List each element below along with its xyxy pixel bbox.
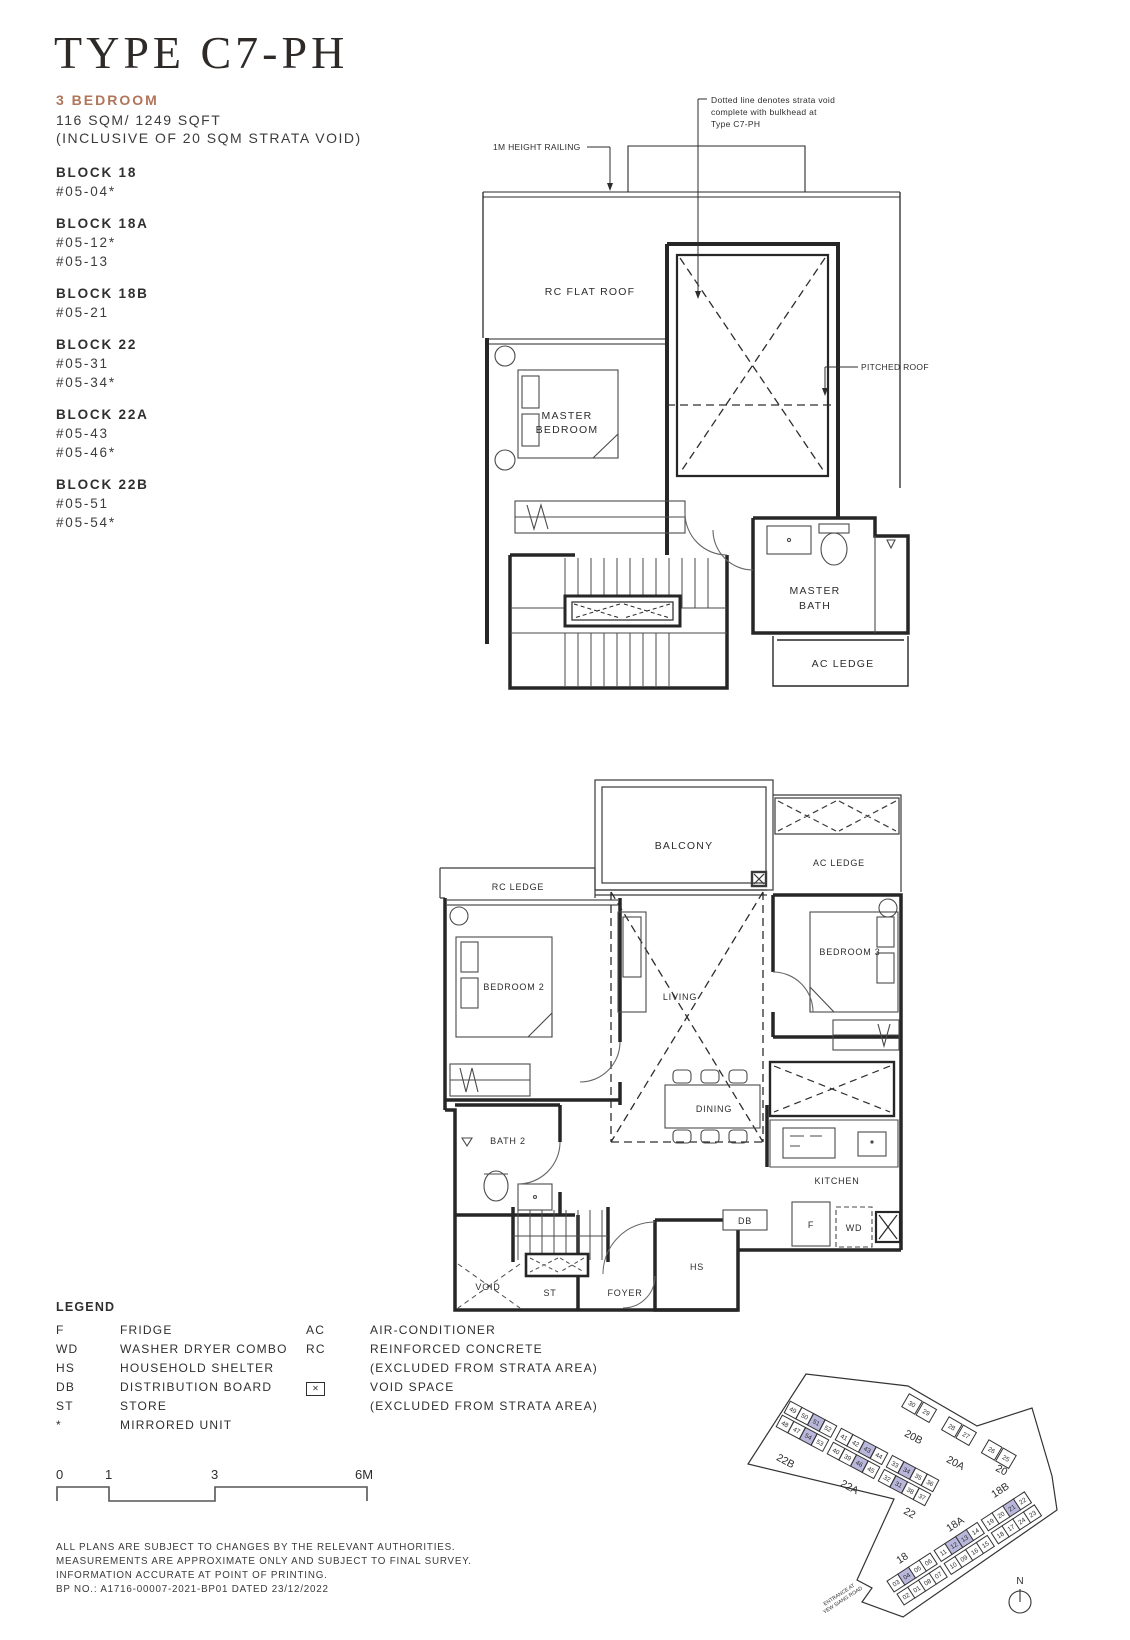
rc-flat-roof-label: RC FLAT ROOF (545, 286, 635, 298)
block-18: BLOCK 18 #05-04* (56, 163, 316, 201)
block-name: BLOCK 22 (56, 335, 316, 354)
block-unit: #05-51 (56, 494, 316, 513)
site-block-label-22: 22 (901, 1505, 917, 1521)
stair-void-box (565, 596, 680, 626)
railing-annotation: 1M HEIGHT RAILING (493, 142, 581, 152)
upper-floor-plan: RC FLAT ROOF MASTER BEDROOM MASTER BATH … (415, 88, 975, 706)
master-bath-fixtures (685, 513, 895, 633)
block-22b: BLOCK 22B #05-51 #05-54* (56, 475, 316, 532)
svg-text:0: 0 (56, 1467, 63, 1482)
site-units: 4950515241424344333435364847545340394645… (776, 1394, 1041, 1605)
kitchen-label: KITCHEN (814, 1176, 859, 1186)
site-block-label-20A: 20A (944, 1454, 966, 1473)
note-line: BP NO.: A1716-00007-2021-BP01 DATED 23/1… (56, 1583, 472, 1597)
block-name: BLOCK 18B (56, 284, 316, 303)
strata-void-annotation: Dotted line denotes strata void (711, 95, 835, 105)
legend-title: LEGEND (56, 1300, 676, 1314)
north-label: N (1016, 1576, 1023, 1587)
living-strata-void-dashed (611, 892, 763, 1142)
block-unit: #05-04* (56, 182, 316, 201)
db-label: DB (738, 1216, 752, 1226)
site-block-label-18: 18 (894, 1550, 910, 1567)
upper-walls (487, 244, 908, 688)
site-block-label-20B: 20B (902, 1428, 924, 1447)
fridge-label: F (808, 1220, 814, 1230)
bath2-label: BATH 2 (490, 1136, 526, 1146)
block-18a: BLOCK 18A #05-12* #05-13 (56, 214, 316, 271)
unit-area-note: (INCLUSIVE OF 20 SQM STRATA VOID) (56, 130, 362, 146)
page-title: TYPE C7-PH (54, 26, 348, 79)
block-unit: #05-54* (56, 513, 316, 532)
block-unit: #05-31 (56, 354, 316, 373)
svg-text:complete with bulkhead at: complete with bulkhead at (711, 107, 817, 117)
svg-text:Type C7-PH: Type C7-PH (711, 119, 760, 129)
svg-text:1: 1 (105, 1467, 112, 1482)
legend: LEGEND FFRIDGE WDWASHER DRYER COMBO HSHO… (56, 1300, 676, 1435)
site-block-label-22A: 22A (838, 1478, 860, 1497)
void-space-symbol: ✕ (306, 1382, 325, 1396)
block-18b: BLOCK 18B #05-21 (56, 284, 316, 322)
rc-ledge-label: RC LEDGE (492, 882, 544, 892)
site-plan: 4950515241424344333435364847545340394645… (700, 1330, 1130, 1640)
site-block-label-18B: 18B (989, 1480, 1011, 1500)
master-bedroom-label: MASTER (542, 410, 593, 422)
bedroom3-label: BEDROOM 3 (819, 947, 880, 957)
scale-bar: 0 1 3 6M (55, 1465, 395, 1507)
dining-label: DINING (696, 1104, 732, 1114)
wd-label: WD (846, 1223, 863, 1233)
bedroom2-label: BEDROOM 2 (483, 982, 544, 992)
note-line: MEASUREMENTS ARE APPROXIMATE ONLY AND SU… (56, 1555, 472, 1569)
svg-text:BEDROOM: BEDROOM (536, 424, 599, 436)
strata-void-dashed (667, 258, 838, 473)
entrance-annotation: ENTRANCE AT YEW SIANG ROAD (819, 1580, 864, 1616)
lower-walls (445, 895, 901, 1310)
legend-left-column: FFRIDGE WDWASHER DRYER COMBO HSHOUSEHOLD… (56, 1321, 306, 1435)
disclaimer-notes: ALL PLANS ARE SUBJECT TO CHANGES BY THE … (56, 1541, 472, 1597)
ledges-balcony (440, 780, 901, 898)
ac-ledge-label: AC LEDGE (813, 858, 865, 868)
note-line: ALL PLANS ARE SUBJECT TO CHANGES BY THE … (56, 1541, 472, 1555)
block-22a: BLOCK 22A #05-43 #05-46* (56, 405, 316, 462)
void-label: VOID (475, 1282, 500, 1292)
svg-text:3: 3 (211, 1467, 218, 1482)
block-unit: #05-12* (56, 233, 316, 252)
lower-room-labels: BALCONY AC LEDGE RC LEDGE BEDROOM 2 LIVI… (475, 840, 880, 1298)
block-unit: #05-13 (56, 252, 316, 271)
living-dining-furniture (618, 912, 760, 1143)
kitchen-fixtures (770, 1062, 898, 1167)
bath2-fixtures (462, 1138, 560, 1210)
hs-label: HS (690, 1262, 704, 1272)
block-name: BLOCK 18A (56, 214, 316, 233)
north-compass: N (1009, 1576, 1031, 1613)
block-unit: #05-43 (56, 424, 316, 443)
pitched-roof-annotation: PITCHED ROOF (861, 362, 929, 372)
lower-floor-plan: BALCONY AC LEDGE RC LEDGE BEDROOM 2 LIVI… (418, 742, 908, 1320)
svg-text:BATH: BATH (799, 600, 831, 612)
svg-text:6M: 6M (355, 1467, 373, 1482)
unit-area: 116 SQM/ 1249 SQFT (56, 112, 221, 128)
block-name: BLOCK 18 (56, 163, 316, 182)
st-label: ST (543, 1288, 556, 1298)
note-line: INFORMATION ACCURATE AT POINT OF PRINTIN… (56, 1569, 472, 1583)
floorplan-page: { "header": { "title": "TYPE C7-PH", "un… (0, 0, 1130, 1640)
bedroom3-furniture (773, 899, 899, 1050)
ac-ledge-upper-label: AC LEDGE (812, 658, 875, 670)
block-unit: #05-34* (56, 373, 316, 392)
block-unit: #05-46* (56, 443, 316, 462)
master-bed-furniture (495, 346, 685, 533)
site-block-label-22B: 22B (774, 1452, 796, 1471)
bedroom2-furniture (450, 907, 620, 1096)
block-22: BLOCK 22 #05-31 #05-34* (56, 335, 316, 392)
living-label: LIVING (663, 992, 697, 1002)
master-bath-label: MASTER (790, 585, 841, 597)
unit-type-label: 3 BEDROOM (56, 92, 159, 108)
block-unit-list: BLOCK 18 #05-04* BLOCK 18A #05-12* #05-1… (56, 163, 316, 545)
legend-right-column: ACAIR-CONDITIONER RCREINFORCED CONCRETE … (306, 1321, 636, 1435)
block-name: BLOCK 22B (56, 475, 316, 494)
foyer-label: FOYER (607, 1288, 642, 1298)
block-name: BLOCK 22A (56, 405, 316, 424)
block-unit: #05-21 (56, 303, 316, 322)
balcony-label: BALCONY (655, 840, 714, 852)
